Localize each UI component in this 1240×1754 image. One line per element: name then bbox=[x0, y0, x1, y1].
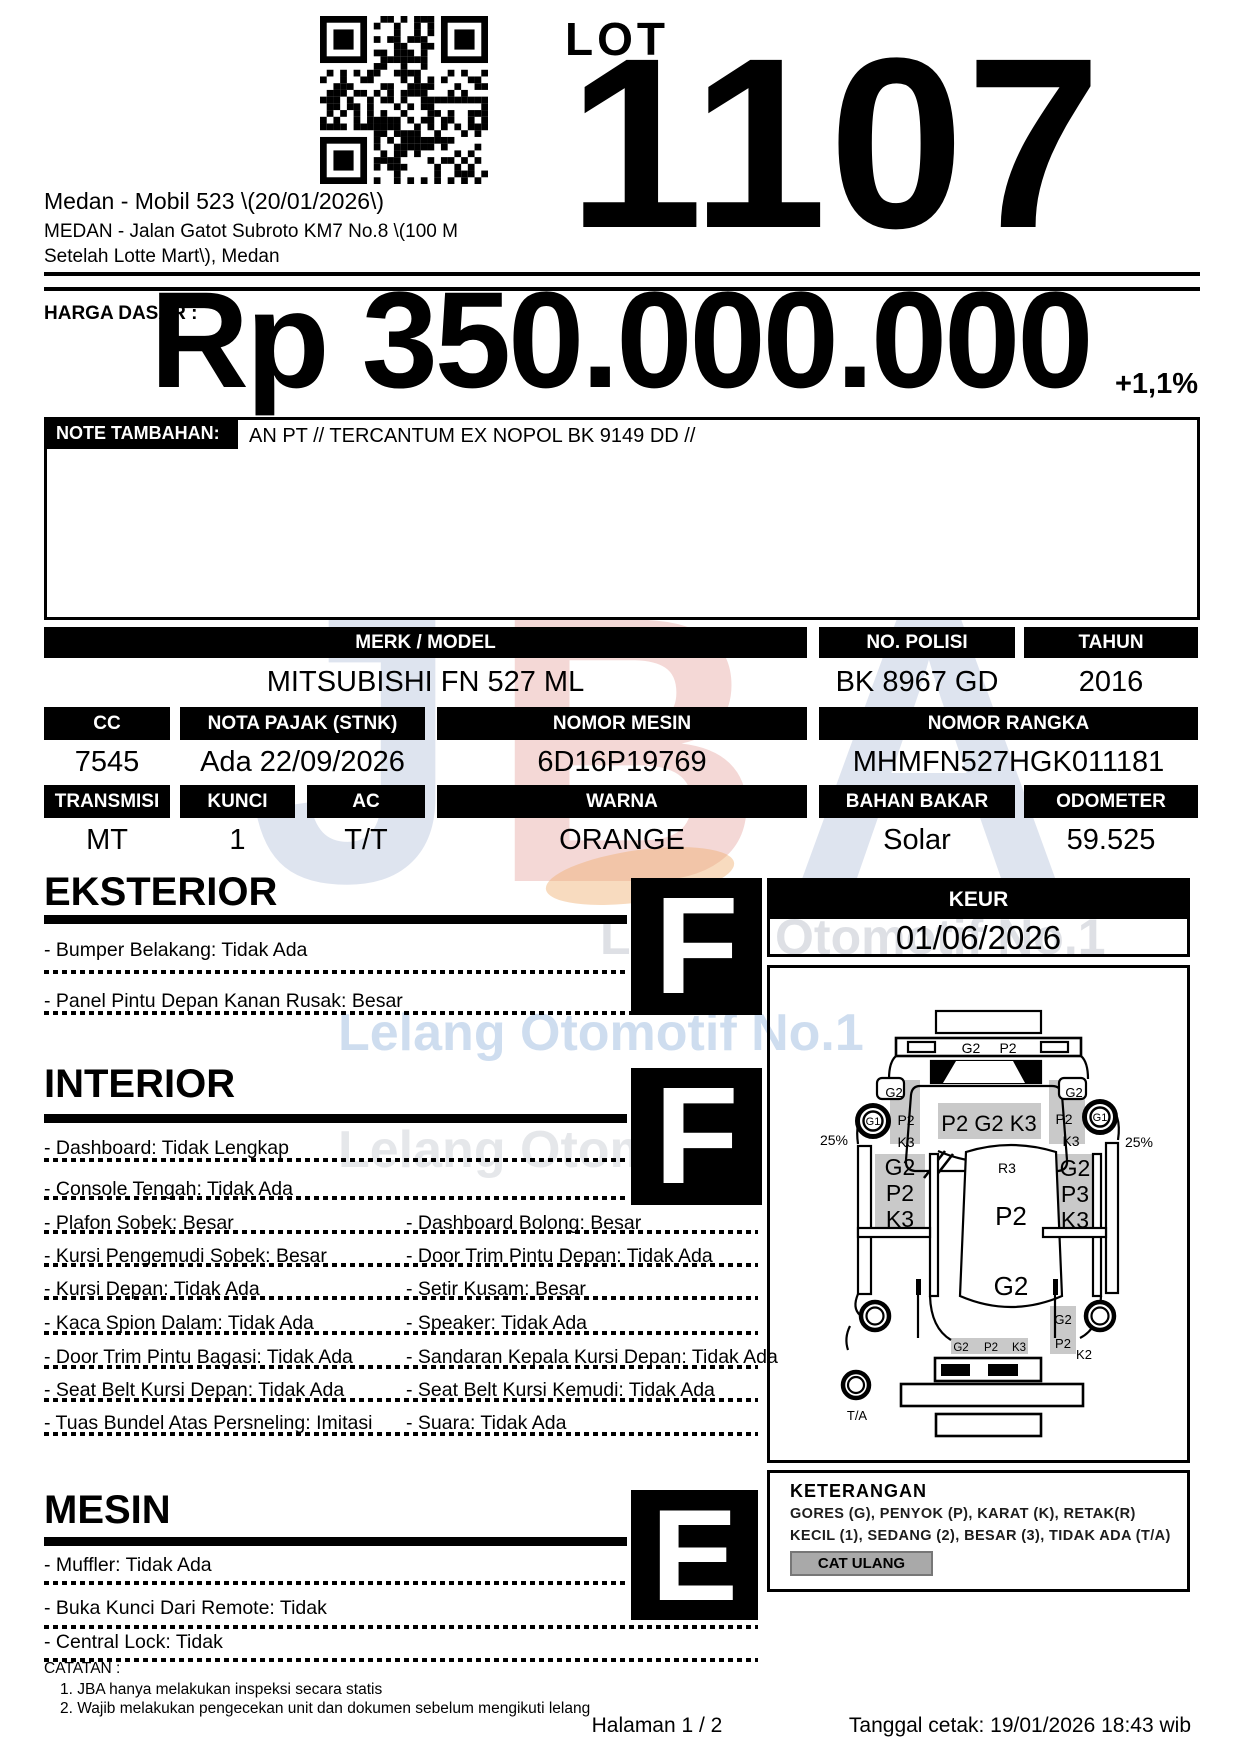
body-line-right bbox=[1081, 1056, 1088, 1079]
nota-pajak-value: Ada 22/09/2026 bbox=[180, 740, 425, 785]
auction-lot-sheet: JBA Lelang Otomotif No.1 Lelang Otomotif… bbox=[0, 0, 1240, 1754]
damage-label: K2 bbox=[1076, 1347, 1092, 1362]
eksterior-grade: F bbox=[654, 869, 738, 1023]
dotted-divider bbox=[44, 1581, 625, 1585]
interior-item: - Dashboard: Tidak Lengkap bbox=[44, 1137, 289, 1160]
base-price-value: Rp 350.000.000 bbox=[150, 286, 1091, 396]
no-polisi-value: BK 8967 GD bbox=[819, 658, 1015, 707]
cargo-wall-left bbox=[930, 1154, 938, 1296]
eksterior-item: - Panel Pintu Depan Kanan Rusak: Besar bbox=[44, 990, 403, 1013]
damage-label: R3 bbox=[998, 1160, 1016, 1176]
transmisi-value: MT bbox=[44, 818, 170, 862]
dotted-divider bbox=[44, 1230, 758, 1234]
truck-top-view: G2 P2 G2 G2 P2 K3 P2 K3 G1 G1 25% 25% P2… bbox=[770, 968, 1187, 1460]
dotted-divider bbox=[44, 1658, 758, 1662]
damage-label: G2 bbox=[1060, 1155, 1091, 1181]
cargo-wall-right bbox=[1093, 1154, 1101, 1296]
damage-label: P2 bbox=[984, 1342, 998, 1354]
rear-under-guard bbox=[936, 1414, 1041, 1436]
kunci-header: KUNCI bbox=[180, 785, 295, 818]
body-line-left bbox=[889, 1056, 896, 1079]
tail-light-left bbox=[941, 1364, 970, 1376]
damage-label: K3 bbox=[1061, 1207, 1089, 1233]
dotted-divider bbox=[44, 1331, 758, 1335]
tahun-header: TAHUN bbox=[1024, 627, 1198, 658]
damage-label: 25% bbox=[820, 1132, 848, 1148]
dotted-divider bbox=[44, 1398, 758, 1402]
cc-value: 7545 bbox=[44, 740, 170, 785]
keur-box: KEUR 01/06/2026 bbox=[767, 878, 1190, 957]
bahan-bakar-header: BAHAN BAKAR bbox=[819, 785, 1015, 818]
auction-title: Medan - Mobil 523 \(20/01/2026\) bbox=[44, 188, 384, 215]
transmisi-header: TRANSMISI bbox=[44, 785, 170, 818]
damage-label: K3 bbox=[897, 1134, 914, 1150]
damage-label: K3 bbox=[1012, 1342, 1026, 1354]
damage-label: G2 bbox=[953, 1342, 968, 1354]
rear-wheel-left bbox=[861, 1302, 889, 1330]
lot-number: 1107 bbox=[568, 38, 1103, 249]
print-timestamp: Tanggal cetak: 19/01/2026 18:43 wib bbox=[849, 1714, 1191, 1738]
nomor-mesin-header: NOMOR MESIN bbox=[437, 707, 807, 740]
interior-grade-badge: F bbox=[631, 1068, 762, 1205]
damage-label: P2 bbox=[999, 1040, 1016, 1056]
tick-right bbox=[1053, 1279, 1058, 1295]
mesin-underline bbox=[44, 1537, 627, 1546]
headlight-left bbox=[908, 1042, 935, 1052]
front-bumper bbox=[896, 1038, 1081, 1056]
eksterior-title: EKSTERIOR bbox=[44, 870, 277, 915]
dotted-divider bbox=[44, 1365, 758, 1369]
dotted-divider bbox=[44, 1263, 758, 1267]
cat-ulang-badge: CAT ULANG bbox=[790, 1551, 933, 1576]
rear-wheel-right bbox=[1086, 1302, 1114, 1330]
warna-header: WARNA bbox=[437, 785, 807, 818]
damage-label: G2 bbox=[1054, 1312, 1071, 1327]
keur-label: KEUR bbox=[770, 881, 1187, 919]
catatan-item: 1. JBA hanya melakukan inspeksi secara s… bbox=[60, 1680, 590, 1699]
damage-label: G2 bbox=[994, 1271, 1029, 1301]
damage-label: P2 bbox=[1055, 1336, 1071, 1351]
mesin-item: - Buka Kunci Dari Remote: Tidak bbox=[44, 1597, 327, 1620]
no-polisi-header: NO. POLISI bbox=[819, 627, 1015, 658]
note-label: NOTE TAMBAHAN: bbox=[46, 419, 238, 449]
damage-diagram: G2 P2 G2 G2 P2 K3 P2 K3 G1 G1 25% 25% P2… bbox=[767, 965, 1190, 1463]
damage-label: P2 G2 K3 bbox=[941, 1111, 1036, 1136]
damage-label: K3 bbox=[886, 1206, 914, 1232]
nomor-rangka-value: MHMFN527HGK011181 bbox=[819, 740, 1198, 785]
mesin-item: - Muffler: Tidak Ada bbox=[44, 1554, 212, 1577]
tahun-value: 2016 bbox=[1024, 658, 1198, 707]
kunci-value: 1 bbox=[180, 818, 295, 862]
keterangan-line2: KECIL (1), SEDANG (2), BESAR (3), TIDAK … bbox=[790, 1528, 1171, 1544]
damage-label: P2 bbox=[995, 1201, 1027, 1231]
price-change-badge: +1,1% bbox=[1115, 368, 1198, 401]
address-line1: MEDAN - Jalan Gatot Subroto KM7 No.8 \(1… bbox=[44, 219, 604, 244]
nota-pajak-header: NOTA PAJAK (STNK) bbox=[180, 707, 425, 740]
keterangan-title: KETERANGAN bbox=[790, 1481, 927, 1502]
eksterior-underline bbox=[44, 915, 627, 924]
damage-label: P2 bbox=[886, 1180, 914, 1206]
damage-label: P2 bbox=[1055, 1111, 1072, 1127]
side-rail-left bbox=[858, 1146, 871, 1294]
mesin-item: - Central Lock: Tidak bbox=[44, 1631, 223, 1654]
mesin-title: MESIN bbox=[44, 1488, 171, 1533]
interior-grade: F bbox=[654, 1059, 738, 1213]
damage-label: G2 bbox=[962, 1040, 981, 1056]
rear-curve-left bbox=[930, 1296, 951, 1340]
dotted-divider bbox=[44, 1296, 758, 1300]
qr-code bbox=[320, 16, 488, 184]
note-box: NOTE TAMBAHAN: AN PT // TERCANTUM EX NOP… bbox=[44, 417, 1200, 620]
mesin-grade: E bbox=[651, 1482, 738, 1628]
keur-value: 01/06/2026 bbox=[770, 919, 1187, 954]
merk-model-value: MITSUBISHI FN 527 ML bbox=[44, 658, 807, 707]
keterangan-line1: GORES (G), PENYOK (P), KARAT (K), RETAK(… bbox=[790, 1506, 1136, 1522]
roof-vent bbox=[936, 1011, 1041, 1033]
rear-cross-member bbox=[901, 1384, 1083, 1406]
eksterior-item: - Bumper Belakang: Tidak Ada bbox=[44, 939, 307, 962]
damage-label: G1 bbox=[1093, 1112, 1108, 1124]
note-text: AN PT // TERCANTUM EX NOPOL BK 9149 DD /… bbox=[249, 425, 695, 448]
ac-header: AC bbox=[307, 785, 425, 818]
damage-label: P2 bbox=[897, 1112, 914, 1128]
odometer-value: 59.525 bbox=[1024, 818, 1198, 862]
damage-label: G2 bbox=[1065, 1085, 1082, 1100]
interior-underline bbox=[44, 1114, 627, 1123]
tick-left bbox=[916, 1279, 921, 1295]
page-number: Halaman 1 / 2 bbox=[532, 1714, 782, 1738]
dotted-divider bbox=[44, 970, 625, 974]
mesin-grade-badge: E bbox=[631, 1490, 758, 1620]
warna-value: ORANGE bbox=[437, 818, 807, 862]
catatan-list: 1. JBA hanya melakukan inspeksi secara s… bbox=[60, 1680, 590, 1718]
windshield-wiper-area bbox=[943, 1061, 1025, 1083]
merk-model-header: MERK / MODEL bbox=[44, 627, 807, 658]
nomor-rangka-header: NOMOR RANGKA bbox=[819, 707, 1198, 740]
auction-address: MEDAN - Jalan Gatot Subroto KM7 No.8 \(1… bbox=[44, 219, 604, 269]
cc-header: CC bbox=[44, 707, 170, 740]
dotted-divider bbox=[44, 1432, 758, 1436]
nomor-mesin-value: 6D16P19769 bbox=[437, 740, 807, 785]
keterangan-box: KETERANGAN GORES (G), PENYOK (P), KARAT … bbox=[767, 1470, 1190, 1592]
catatan-item: 2. Wajib melakukan pengecekan unit dan d… bbox=[60, 1699, 590, 1718]
damage-label: G2 bbox=[885, 1154, 916, 1180]
damage-label: G2 bbox=[885, 1085, 902, 1100]
odometer-header: ODOMETER bbox=[1024, 785, 1198, 818]
damage-label: G1 bbox=[866, 1116, 881, 1128]
rear-fender-squiggle bbox=[846, 1294, 860, 1350]
tail-light-right bbox=[988, 1364, 1018, 1376]
catatan-title: CATATAN : bbox=[44, 1660, 120, 1678]
side-rail-right bbox=[1106, 1143, 1118, 1293]
ac-value: T/T bbox=[307, 818, 425, 862]
damage-label: 25% bbox=[1125, 1134, 1153, 1150]
damage-label: T/A bbox=[847, 1408, 868, 1423]
interior-title: INTERIOR bbox=[44, 1062, 235, 1107]
dotted-divider bbox=[44, 1196, 625, 1200]
bahan-bakar-value: Solar bbox=[819, 818, 1015, 862]
damage-label: K3 bbox=[1062, 1133, 1079, 1149]
dotted-divider bbox=[44, 1158, 625, 1162]
damage-label: P3 bbox=[1061, 1181, 1089, 1207]
eksterior-grade-badge: F bbox=[631, 878, 762, 1015]
headlight-right bbox=[1041, 1042, 1068, 1052]
